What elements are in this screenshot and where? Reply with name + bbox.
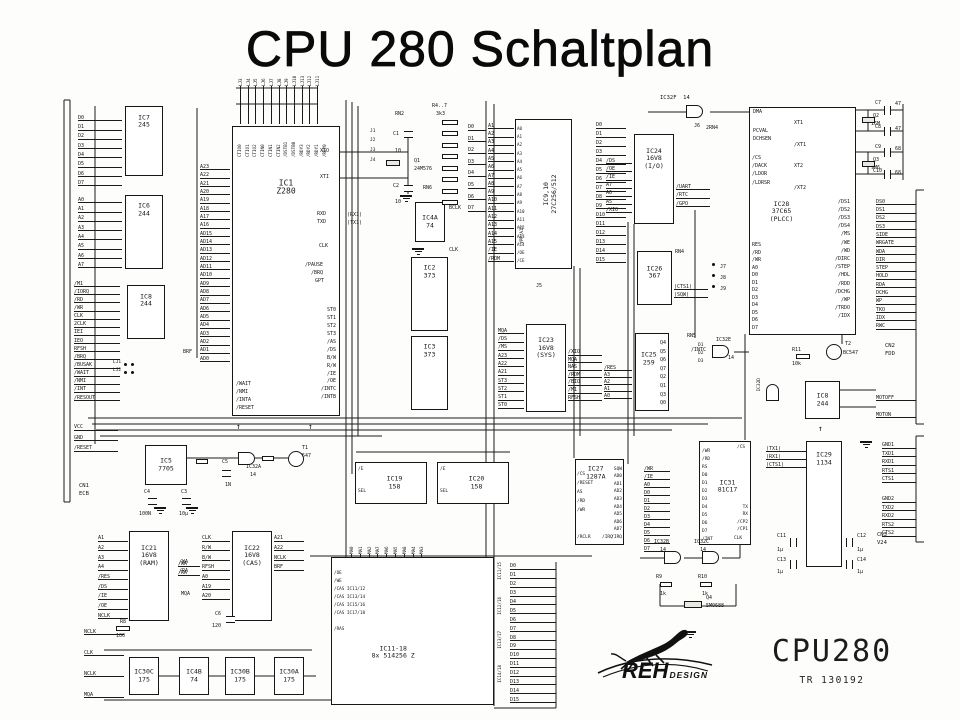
ic-label-IC8b: IC8 244 (817, 393, 829, 408)
signal-label: /AS (306, 337, 336, 345)
page-title: CPU 280 Schaltplan (0, 20, 960, 78)
ic-label-IC4B: IC4B 74 (186, 669, 202, 684)
signal-label: AD6 (200, 304, 230, 312)
text-label: ↑ (308, 424, 313, 430)
signal-label: A22 (200, 170, 230, 178)
text-label: LJ1 (113, 360, 121, 366)
signal-label: /OE (334, 568, 390, 576)
ic-label-IC5: IC5 7705 (158, 458, 174, 473)
signal-label: Q5 (650, 346, 666, 355)
signal-label: GND1 (882, 440, 916, 449)
jumper-tick (279, 86, 280, 124)
cap-c4 (148, 498, 157, 505)
jumper-tick (240, 86, 241, 124)
text-label: R11 (792, 347, 801, 353)
signal-label: /MS (498, 343, 524, 351)
signal-label: D12 (510, 668, 556, 677)
text-label: 2RN4 (706, 125, 718, 131)
signal-label: D13 (510, 677, 556, 686)
signal-label: /WP (820, 294, 850, 302)
signal-label: A7 (78, 259, 122, 268)
signal-label: AD4 (200, 321, 230, 329)
ic-label-IC1: IC1 Z280 (276, 180, 295, 195)
signal-label: MOTOFF (876, 384, 916, 401)
signal-label-jumper-row-lj: LJ8 (277, 64, 283, 86)
signal-label: A2 (488, 129, 514, 137)
jumper-dot (712, 285, 715, 288)
signal-label: A1 (98, 532, 128, 542)
text-label: IC12/16 (497, 597, 503, 615)
signal-stack-ic22-left: CLKR/WB/WRFSHA0A19A20 (202, 532, 230, 600)
signal-label: /LDOR (752, 169, 786, 177)
signal-label: AD4 (598, 502, 622, 510)
signal-stack-ic25-in-right: Q4Q5Q6Q7Q2Q1Q3Q0 (650, 337, 666, 406)
signal-label: SQW (598, 464, 622, 472)
ic-label-IC20: IC20 158 (469, 476, 485, 491)
signal-label: /BIO (568, 378, 602, 386)
signal-label: A18 (200, 204, 230, 212)
signal-label-ram-ma-row: MA3 (419, 536, 425, 554)
text-label: /BRQ (311, 270, 323, 276)
signal-label: /DS (498, 334, 524, 342)
signal-label: D14 (510, 685, 556, 694)
signal-stack-ic27-in-right: SQWAD0AD1AD2AD3AD4AD5AD6AD7/IRQ (598, 464, 622, 540)
signal-label: /RTC (676, 190, 710, 198)
signal-label: A23 (498, 351, 524, 359)
signal-label: A9 (517, 197, 539, 205)
jumper-tick (386, 554, 387, 558)
text-label: LJ2 (113, 368, 121, 374)
signal-label: WP (876, 297, 916, 305)
cap-c2 (404, 185, 413, 192)
signal-label: RFSH (74, 344, 120, 352)
signal-label: IEO (74, 336, 120, 344)
signal-stack-ic24-right: /UART/RTC/GPO (676, 182, 710, 207)
gnd-symbol (412, 247, 424, 255)
text-label: RXD (317, 211, 326, 217)
signal-label: MQA (568, 356, 602, 364)
signal-label: A8 (488, 179, 514, 187)
gnd-symbol (860, 440, 872, 448)
signal-label: AD8 (200, 287, 230, 295)
text-label: RN6 (423, 185, 432, 191)
jumper-tick (395, 554, 396, 558)
signal-label: /CS (752, 152, 786, 160)
signal-label: AD7 (598, 525, 622, 533)
text-label: BRF (183, 349, 192, 355)
res-r11 (796, 354, 810, 359)
cap-c7 (884, 106, 891, 115)
signal-label: DCHG (876, 288, 916, 296)
signal-stack-ic28-in-bot: RES/RD/WRA0D0D1D2D3D4D5D6D7 (752, 240, 782, 330)
text-label: (RX1) (347, 212, 362, 218)
signal-label: /WD (820, 245, 850, 253)
signal-label: D0 (78, 112, 122, 121)
signal-label: AD0 (200, 354, 230, 362)
signal-stack-ic28-xt: XT1/XT1XT2/XT2 (794, 104, 816, 190)
ic-label-IC3: IC3 373 (424, 344, 436, 359)
signal-label: A0 (517, 122, 539, 130)
signal-label: A16 (200, 220, 230, 228)
jumper-tick (302, 86, 303, 124)
text-label: 68 (895, 146, 901, 152)
signal-label: CTS2 (882, 528, 916, 537)
signal-label: A7 (488, 171, 514, 179)
res-r7 (442, 200, 458, 205)
signal-label: AD2 (200, 337, 230, 345)
transistor-t2 (826, 344, 842, 360)
signal-label: /RD (702, 454, 724, 462)
res-net (442, 154, 458, 159)
signal-label: D0 (510, 561, 556, 570)
text-label: MQA (181, 591, 190, 597)
ic-label-IC30B: IC30B 175 (230, 669, 250, 684)
ic-label-IC30C: IC30C 175 (134, 669, 154, 684)
cap-c12 (846, 538, 853, 547)
signal-label: /RD (74, 295, 120, 303)
signal-label: D7 (510, 623, 556, 632)
text-label: IC32E (716, 337, 731, 343)
text-label: C2 (393, 183, 399, 189)
crystal-q2 (862, 117, 875, 123)
signal-label-ram-ma-row: MA4 (411, 536, 417, 554)
signal-label: D2 (468, 142, 486, 154)
signal-label: D7 (752, 323, 782, 331)
signal-stack-ic1-left-int: /WAIT/NMI/INTA/RESET (236, 378, 266, 410)
jumper-dot (712, 263, 715, 266)
res-ic5b (262, 456, 274, 461)
signal-label: A3 (517, 147, 539, 155)
gate-ic32b (664, 551, 681, 564)
text-label: IC32C (694, 539, 709, 545)
text-label: XTI (320, 174, 329, 180)
text-label: VPP/A15 (519, 226, 525, 244)
signal-label: A19 (202, 580, 230, 590)
signal-label: /XIO (568, 348, 602, 356)
signal-label: A22 (274, 542, 304, 552)
signal-label: Q3 (650, 389, 666, 398)
signal-label: RX (726, 510, 748, 518)
signal-label-ic1-top-pins: CTIO1 (245, 129, 251, 157)
signal-label-ic1-top-pins: CTIN2 (276, 129, 282, 157)
signal-label: CLK (74, 312, 120, 320)
signal-label: A17 (200, 212, 230, 220)
signal-label: DS1 (876, 205, 916, 213)
signal-label: (RX1) (766, 452, 806, 460)
signal-stack-ic23-left: MQA/DS/MSA23A22A21ST3ST2ST1ST0 (498, 326, 524, 409)
signal-label: A2 (98, 542, 128, 552)
board-title-block: CPU280 TR 130192 (752, 634, 912, 686)
rehdesign-logo: REH DESIGN (596, 624, 734, 694)
ic-box-IC8a: IC8 244 (127, 285, 165, 339)
signal-label-ram-ma-row: MA8 (402, 536, 408, 554)
gate-ic32f (686, 105, 703, 118)
signal-label: AD7 (200, 296, 230, 304)
signal-label-jumper-row-lj: LJ13 (300, 64, 306, 86)
signal-label: J4 (370, 153, 384, 163)
text-label: 1k (660, 591, 666, 597)
signal-label: D6 (78, 168, 122, 177)
signal-label-ic1-top-pins: /DSTB0 (291, 129, 297, 157)
signal-stack-serial1: GND1TXD1RXD1RTS1CTS1 (882, 440, 916, 483)
signal-label: /OE (98, 600, 128, 610)
text-label: C10 (873, 168, 882, 174)
signal-label: ST2 (498, 384, 524, 392)
signal-label: /NMI (236, 386, 266, 394)
jumper-dot (124, 363, 127, 366)
signal-label: D4 (702, 502, 724, 510)
signal-label: /IE (98, 590, 128, 600)
signal-label: A21 (200, 179, 230, 187)
ic-box-IC21: IC21 16V8 (RAM) (129, 531, 169, 621)
signal-label: J3 (370, 143, 384, 153)
signal-label: /IE (606, 172, 632, 180)
signal-label: D4 (78, 149, 122, 158)
signal-label: CTS1 (882, 474, 916, 483)
text-label: /INTC (691, 347, 706, 353)
signal-label: /IE (488, 245, 514, 253)
signal-label (334, 616, 390, 624)
res-r10 (700, 582, 712, 587)
signal-label: /INTB (306, 392, 336, 400)
signal-label: VCC (74, 420, 118, 431)
signal-label: 2CLK (74, 320, 120, 328)
signal-label: D4 (468, 165, 486, 177)
signal-stack-pwr-left: VCCGND/RESET (74, 420, 118, 452)
signal-label: A2 (604, 378, 632, 385)
jumper-tick (286, 86, 287, 124)
signal-label: /DS1 (820, 196, 850, 204)
signal-label: ST3 (498, 376, 524, 384)
signal-label: AD12 (200, 254, 230, 262)
signal-stack-ic25-left: /RESA3A2A1A0 (604, 364, 632, 399)
signal-label: D12 (596, 227, 626, 236)
signal-label: A5 (517, 163, 539, 171)
signal-label: /XIO (606, 205, 632, 213)
signal-label: BRF (274, 561, 304, 571)
text-label: J5 (536, 283, 542, 289)
logo-reh: REH (622, 658, 668, 684)
signal-label: D7 (702, 526, 724, 534)
signal-label: MQA (498, 326, 524, 334)
signal-label: /DCHG (820, 286, 850, 294)
signal-label-ic1-top-pins: CTIN1 (268, 129, 274, 157)
gnd-symbol (154, 506, 166, 514)
jumper-dot (124, 371, 127, 374)
signal-label: D6 (702, 518, 724, 526)
ic-box-IC22: IC22 16V8 (CAS) (232, 531, 272, 621)
signal-label: A7 (517, 180, 539, 188)
signal-stack-ic29-left: (TX1)(RX1)(CTS1) (766, 444, 806, 468)
signal-label-ram-ma-row: MA1 (358, 536, 364, 554)
text-label: /WA (179, 559, 188, 565)
text-label: C7 (875, 100, 881, 106)
text-label: SEL (440, 489, 448, 495)
signal-label-jumper-row-lj: LJ12 (307, 64, 313, 86)
signal-label: A19 (200, 195, 230, 203)
ic-label-IC29: IC29 1134 (816, 452, 832, 467)
signal-label: RDA (876, 280, 916, 288)
signal-label: /ROM (568, 371, 602, 379)
signal-label: /TRDO (820, 302, 850, 310)
text-label: 1µ (777, 547, 783, 553)
jumper-dot (131, 363, 134, 366)
signal-label: D1 (78, 121, 122, 130)
signal-label: /NMI (74, 377, 120, 385)
signal-label: STEP (876, 263, 916, 271)
text-label: 1N (225, 482, 231, 488)
text-label: C11 (777, 533, 786, 539)
signal-label: /CAS IC13/14 (334, 592, 390, 600)
signal-label: Q2 (650, 371, 666, 380)
text-label: XTO (320, 148, 329, 154)
signal-label-ram-ma-row: MA0 (349, 536, 355, 554)
signal-stack-ic31-in-left: /WR/RDRSD0D1D2D3D4D5D6D7/INT (702, 446, 724, 542)
signal-stack-serial2: GND2TXD2RXD2RTS2CTS2 (882, 494, 916, 537)
signal-label: A6 (517, 172, 539, 180)
signal-stack-rom-addr-out: A1A2A3A4A5A6A7A8A9A10A11A12A13A14A15/IE/… (488, 121, 514, 262)
signal-label: NCLK (274, 551, 304, 561)
signal-label: /WR (752, 255, 782, 263)
signal-label-ram-ma-row: MA7 (375, 536, 381, 554)
jumper-tick (294, 86, 295, 124)
signal-label: TX (726, 502, 748, 510)
signal-label: ST1 (498, 392, 524, 400)
signal-label: D13 (596, 236, 626, 245)
signal-label: /CAS IC17/18 (334, 608, 390, 616)
ic-label-IC30A: IC30A 175 (279, 669, 299, 684)
text-label: /RA (179, 568, 188, 574)
signal-label: D6 (468, 189, 486, 201)
signal-label: ST2 (306, 321, 336, 329)
text-label: IC11/15 (497, 562, 503, 580)
signal-label: D11 (596, 218, 626, 227)
signal-label: AD2 (598, 487, 622, 495)
signal-label-ram-ma-row: MA6 (384, 536, 390, 554)
signal-label: D3 (596, 147, 626, 156)
signal-label: /UART (676, 182, 710, 190)
signal-label: /WAIT (236, 378, 266, 386)
text-label: 5M0688 (706, 603, 724, 609)
gnd-symbol (186, 506, 198, 514)
signal-label: RES (752, 240, 782, 248)
signal-label: /M1 (568, 386, 602, 394)
res-ic5a (196, 459, 208, 464)
jumper-tick (377, 554, 378, 558)
signal-label-ic1-top-pins: CTIO2 (252, 129, 258, 157)
jumper-tick (351, 554, 352, 558)
text-label: 24M576 (414, 166, 432, 172)
signal-label: SIDE (876, 230, 916, 238)
signal-label: TKO (876, 305, 916, 313)
ic-box-IC7: IC7 245 (125, 106, 163, 176)
ic-label-IC11_18: IC11-18 8x 514256 Z (372, 645, 415, 660)
ic-label-IC21: IC21 16V8 (RAM) (139, 545, 159, 568)
signal-label: AD9 (200, 279, 230, 287)
signal-label: /WR (702, 446, 724, 454)
signal-label: D5 (752, 308, 782, 316)
signal-label: /DIRC (820, 253, 850, 261)
signal-label: A10 (517, 205, 539, 213)
text-label: Q1 (414, 158, 420, 164)
text-label: C13 (777, 557, 786, 563)
signal-label: RTS1 (882, 466, 916, 475)
text-label: BC547 (843, 350, 858, 356)
signal-stack-jumpers-j7-9: J7J8J9 (720, 258, 732, 291)
signal-label: XT1 (794, 104, 816, 126)
signal-label: TXD1 (882, 449, 916, 458)
signal-label: J1 (370, 124, 384, 134)
res-net (442, 166, 458, 171)
signal-label: D2 (78, 131, 122, 140)
signal-stack-ram-d-out: D0D1D2D3D4D5D6D7D8D9D10D11D12D13D14D15 (510, 561, 556, 703)
ic-label-IC19: IC19 158 (387, 476, 403, 491)
text-label: IC32B (654, 539, 669, 545)
signal-label: A3 (604, 371, 632, 378)
text-label: C9 (875, 144, 881, 150)
signal-label: (CTS1) (674, 282, 708, 290)
signal-label: Q7 (650, 363, 666, 372)
text-label: C4 (144, 489, 150, 495)
signal-label: /MS (820, 229, 850, 237)
signal-label: A21 (274, 532, 304, 542)
signal-label: A7 (606, 181, 632, 189)
signal-label: A1 (488, 121, 514, 129)
signal-stack-addr-bus-left: A0A1A2A3A4A5A6A7 (78, 194, 122, 268)
signal-label: (TX1) (766, 444, 806, 452)
text-label: SEL (358, 489, 366, 495)
signal-label: AD11 (200, 262, 230, 270)
signal-label: J8 (720, 269, 732, 280)
text-label: PCVAL (753, 128, 768, 134)
cap-c9 (884, 148, 891, 157)
signal-label: /RES (98, 571, 128, 581)
text-label: BCLK (449, 205, 461, 211)
signal-label: A5 (606, 197, 632, 205)
signal-label: A15 (488, 237, 514, 245)
signal-label: GND (74, 431, 118, 442)
signal-label: AD3 (598, 494, 622, 502)
text-label: 68 (895, 170, 901, 176)
signal-label: A21 (498, 367, 524, 375)
signal-label: J9 (720, 280, 732, 291)
text-label: TXD (317, 219, 326, 225)
signal-label: A20 (202, 590, 230, 600)
text-label: T2 (845, 341, 851, 347)
signal-label: (CTS1) (766, 460, 806, 468)
ic-label-IC22: IC22 16V8 (CAS) (242, 545, 262, 568)
signal-label: ST0 (498, 401, 524, 409)
jumper-tick (413, 554, 414, 558)
signal-label: A6 (606, 189, 632, 197)
signal-label: ST3 (306, 329, 336, 337)
signal-label: A14 (488, 229, 514, 237)
text-label: ↑ (818, 426, 823, 432)
signal-label: D1 (510, 570, 556, 579)
signal-label: AD10 (200, 270, 230, 278)
jumper-tick (271, 86, 272, 124)
signal-label: /RES (604, 364, 632, 371)
text-label: R8 (120, 619, 126, 625)
cap-c13 (790, 560, 797, 569)
schematic-canvas: CPU 280 Schaltplan IC7 245IC6 244IC8 244… (0, 0, 960, 720)
text-label: 10 (395, 148, 401, 154)
signal-label: R/W (202, 542, 230, 552)
signal-label: A2 (78, 213, 122, 222)
signal-label: A1 (604, 385, 632, 392)
signal-label: AD1 (200, 346, 230, 354)
signal-label: /LDRSR (752, 177, 786, 185)
